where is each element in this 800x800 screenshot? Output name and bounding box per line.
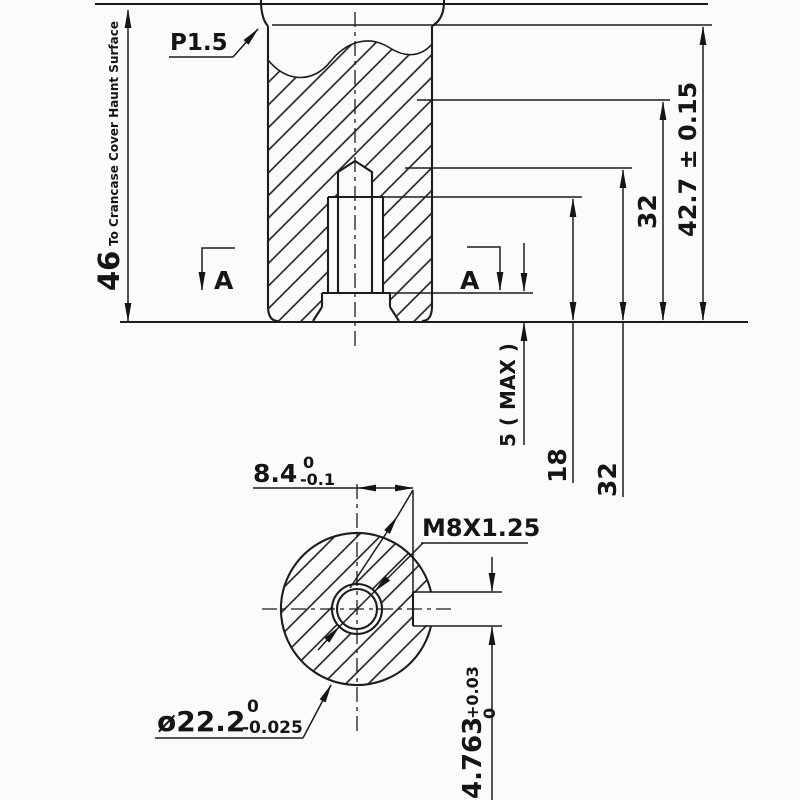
section-marker-right-label: A [460, 266, 480, 295]
dim-32-below: 32 [593, 170, 623, 497]
dim-18-value: 18 [543, 448, 572, 483]
dim-8-4-tol-bottom: -0.1 [300, 470, 335, 489]
section-marker-left: A [202, 248, 235, 295]
dim-4-763-value: 4.763 [458, 717, 488, 799]
dim-46-note: To Crancase Cover Haunt Surface [107, 21, 121, 246]
dim-4-763: 4.763 +0.03 0 [458, 557, 499, 800]
dim-4-763-tol-bottom: 0 [480, 708, 499, 719]
section-marker-right: A [460, 247, 500, 295]
diameter-tol-bottom: -0.025 [242, 718, 303, 738]
dim-18: 18 [543, 199, 573, 483]
dim-32-inline: 32 [633, 102, 663, 320]
dim-42-7-value: 42.7 ± 0.15 [674, 82, 702, 237]
dim-32-below-value: 32 [593, 462, 622, 497]
technical-drawing-canvas: 46 To Crancase Cover Haunt Surface 42.7 … [0, 0, 800, 800]
dim-32-inline-value: 32 [633, 194, 662, 229]
dim-8-4-value: 8.4 [253, 459, 297, 488]
diameter-tol-top: 0 [247, 697, 259, 717]
thread-label: M8X1.25 [422, 514, 540, 542]
diameter-callout: ø22.2 0 -0.025 [155, 685, 331, 738]
diameter-value: ø22.2 [157, 705, 245, 738]
dim-46-value: 46 [92, 251, 126, 291]
fillet-callout: P1.5 [169, 29, 258, 57]
fillet-label: P1.5 [170, 30, 228, 56]
chamfer-void [312, 293, 400, 321]
bottom-view: 8.4 0 -0.1 M8X1.25 ø22.2 0 -0.025 [155, 453, 540, 800]
dim-42-7: 42.7 ± 0.15 [674, 27, 703, 320]
dim-5-max-value: 5 ( MAX ) [496, 343, 520, 447]
drawing-svg: 46 To Crancase Cover Haunt Surface 42.7 … [0, 0, 800, 800]
section-view: 46 To Crancase Cover Haunt Surface 42.7 … [92, 0, 748, 497]
dim-46: 46 To Crancase Cover Haunt Surface [92, 10, 128, 321]
section-marker-left-label: A [214, 266, 234, 295]
